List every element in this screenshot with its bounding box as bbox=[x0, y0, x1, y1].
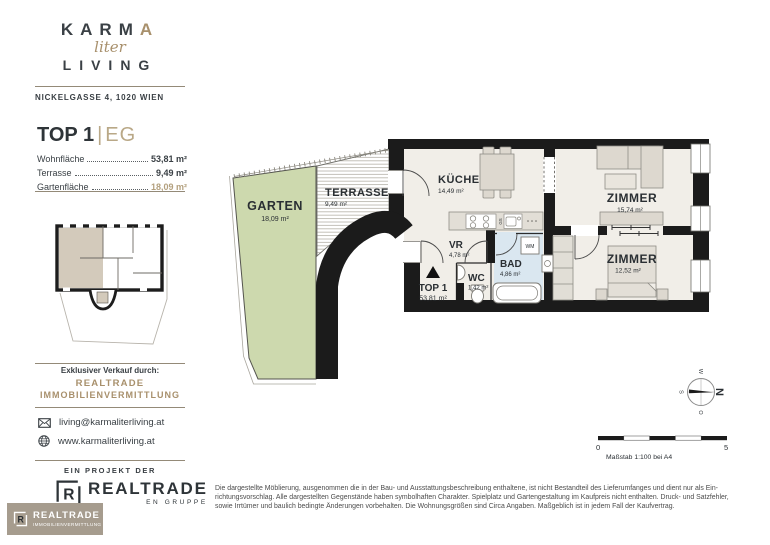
shaft bbox=[456, 283, 464, 302]
label-top1-area: 53,81 m² bbox=[419, 296, 447, 303]
label-zimmer-1-area: 15,74 m² bbox=[617, 207, 643, 214]
compass-w: W bbox=[697, 369, 703, 375]
label-zimmer-2: ZIMMER bbox=[607, 252, 657, 266]
floor-plan: GS bbox=[0, 0, 770, 545]
label-bad-area: 4,86 m² bbox=[500, 272, 520, 278]
disclaimer: Die dargestellte Möblierung, ausgenommen… bbox=[215, 484, 763, 512]
kitchen-counter: GS bbox=[449, 212, 543, 230]
scale-caption: Maßstab 1:100 bei A4 bbox=[606, 454, 672, 461]
label-wc: WC bbox=[468, 273, 485, 284]
wall-kitchen-left-upper bbox=[389, 140, 404, 171]
coffee-table bbox=[605, 174, 636, 189]
garden-area bbox=[233, 166, 316, 379]
scale-bar: 0 5 Maßstab 1:100 bei A4 bbox=[596, 436, 728, 461]
scale-end: 5 bbox=[724, 443, 728, 452]
label-terrasse: TERRASSE bbox=[325, 187, 389, 199]
disclaimer-line: Die dargestellte Möblierung, ausgenommen… bbox=[215, 484, 763, 493]
dining-table bbox=[480, 147, 514, 198]
bath-basin bbox=[542, 255, 553, 272]
scale-start: 0 bbox=[596, 443, 600, 452]
label-zimmer-1: ZIMMER bbox=[607, 191, 657, 205]
disclaimer-line: sowie Irrtümer und baulich bedingte Ände… bbox=[215, 502, 763, 511]
wall-bottom bbox=[404, 300, 709, 312]
label-top1: TOP 1 bbox=[419, 283, 448, 294]
dishwasher-label: GS bbox=[498, 218, 503, 224]
washing-machine-label: WM bbox=[526, 244, 535, 250]
compass-s: S bbox=[678, 390, 684, 394]
compass-o: O bbox=[697, 410, 703, 415]
disclaimer-line: richtungsvorschlag. Alle dargestellten G… bbox=[215, 493, 763, 502]
nightstand bbox=[657, 289, 668, 300]
label-wc-area: 1,42 m² bbox=[468, 286, 488, 292]
bathtub bbox=[493, 283, 541, 303]
label-vr-area: 4,78 m² bbox=[449, 253, 469, 259]
label-bad: BAD bbox=[500, 259, 522, 270]
closet bbox=[553, 236, 573, 300]
brochure-page: KARMA liter LIVING NICKELGASSE 4, 1020 W… bbox=[0, 0, 770, 545]
label-garten: GARTEN bbox=[247, 199, 303, 213]
label-terrasse-area: 9,49 m² bbox=[325, 201, 348, 208]
label-garten-area: 18,09 m² bbox=[261, 216, 289, 223]
label-kueche-area: 14,49 m² bbox=[438, 188, 464, 195]
label-zimmer-2-area: 12,52 m² bbox=[615, 268, 641, 275]
compass-n: N bbox=[713, 388, 725, 396]
label-vr: VR bbox=[449, 240, 464, 251]
nightstand bbox=[596, 289, 607, 300]
wall-curved-garden bbox=[327, 222, 404, 379]
compass: N W S O bbox=[678, 369, 726, 415]
label-kueche: KÜCHE bbox=[438, 173, 480, 186]
wall-entry-lower bbox=[404, 262, 420, 312]
